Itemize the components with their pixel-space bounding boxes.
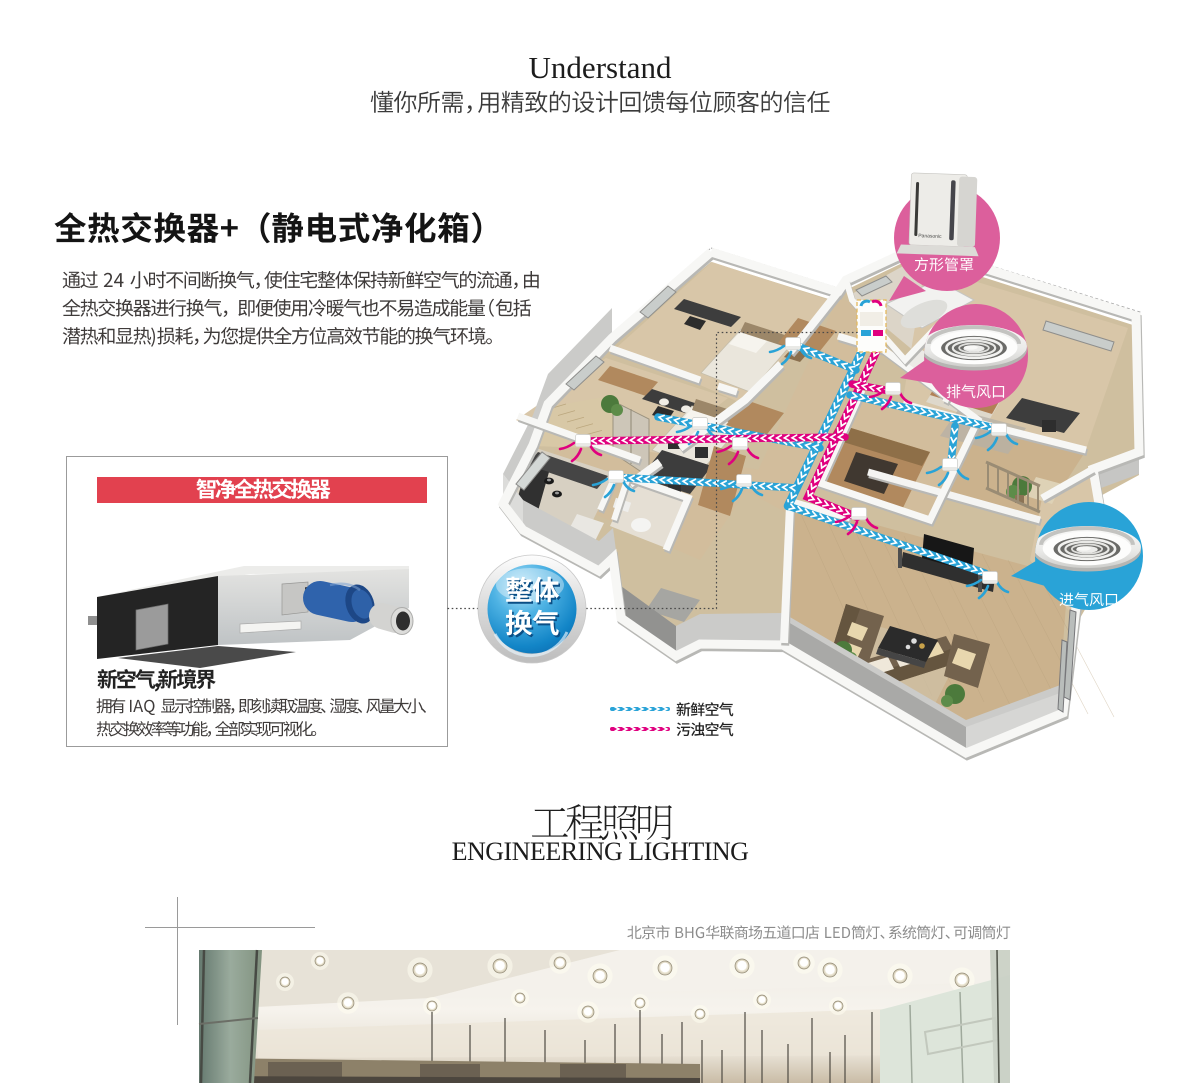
svg-text:ENGINEERING LIGHTING: ENGINEERING LIGHTING bbox=[452, 837, 749, 866]
svg-text:Panasonic: Panasonic bbox=[918, 233, 942, 240]
svg-text:Understand: Understand bbox=[529, 50, 672, 85]
